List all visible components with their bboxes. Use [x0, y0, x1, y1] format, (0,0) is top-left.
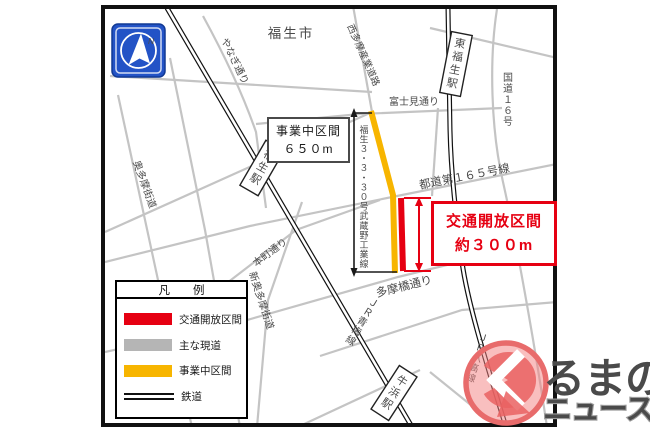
legend-row-existing: 主な現道: [124, 338, 246, 353]
legend-row-railway: 鉄道: [124, 389, 246, 404]
legend-swatch-gray: [124, 339, 172, 351]
legend-row-construction: 事業中区間: [124, 363, 246, 378]
construction-callout-line2: ６５０m: [284, 140, 334, 158]
construction-callout-line1: 事業中区間: [276, 122, 341, 140]
legend-label: 主な現道: [179, 338, 221, 353]
watermark-text-bottom: ニュース: [543, 394, 650, 426]
construction-callout-box: 事業中区間 ６５０m: [267, 117, 350, 163]
legend-swatch-railway-icon: [124, 393, 174, 400]
legend-row-opening: 交通開放区間: [124, 312, 246, 327]
legend: 凡 例 交通開放区間 主な現道 事業中区間 鉄道: [115, 280, 248, 419]
legend-swatch-red: [124, 313, 172, 325]
legend-label: 事業中区間: [179, 363, 232, 378]
segment-opening-red: [401, 198, 403, 271]
watermark-logo: るまの ニュース: [466, 343, 650, 426]
road-label-fujimi: 富士見通り: [389, 95, 439, 108]
map-figure: N 福生市 やなぎ通り 西多摩産業道路 富士見通り 都道第１６５号線 多摩橋通り…: [0, 0, 650, 433]
opening-callout-box: 交通開放区間 約３００m: [431, 201, 557, 266]
legend-body: 交通開放区間 主な現道 事業中区間 鉄道: [115, 299, 248, 419]
road-label-route16: 国道１６号: [503, 72, 513, 128]
legend-label: 鉄道: [181, 389, 202, 404]
opening-callout-line1: 交通開放区間: [446, 210, 542, 233]
north-compass-icon: N: [112, 24, 165, 77]
opening-callout-line2: 約３００m: [455, 234, 533, 257]
legend-swatch-yellow: [124, 365, 172, 377]
compass-n-label: N: [148, 36, 155, 46]
city-label: 福生市: [268, 25, 315, 41]
road-label-new-road: 福生３・３・３０号武蔵野工業線: [359, 124, 368, 269]
legend-title: 凡 例: [115, 280, 248, 299]
legend-label: 交通開放区間: [179, 312, 242, 327]
